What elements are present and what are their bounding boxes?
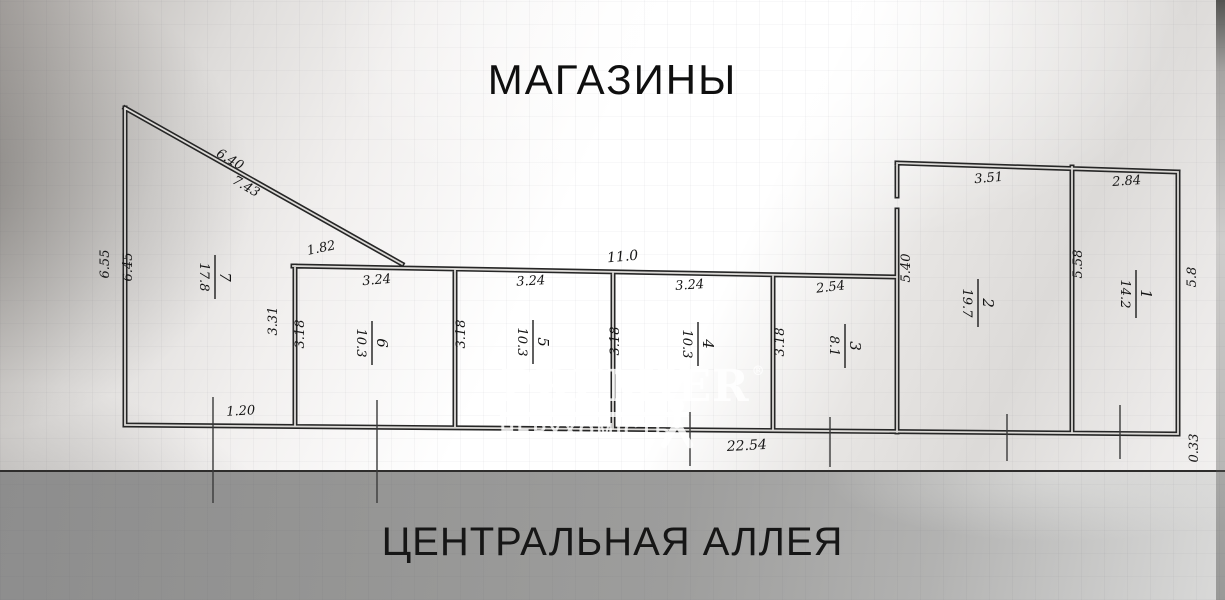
room2-number: 2	[979, 297, 997, 308]
scanned-floor-plan-photo: МАГАЗИНЫ 6.40 7.43 1.82 3.24 3.24 3.24 2…	[0, 0, 1225, 600]
room-label-3: 3 8.1	[826, 324, 864, 368]
room3-number: 3	[846, 341, 864, 351]
room-label-7: 7 17.8	[196, 255, 234, 299]
room6-area: 10.3	[353, 329, 368, 358]
dim-room1-width: 2.84	[1111, 173, 1142, 190]
street-label: ЦЕНТРАЛЬНАЯ АЛЛЕЯ	[0, 520, 1225, 565]
dim-room5-width: 3.24	[516, 273, 546, 289]
watermark-divider	[500, 412, 688, 417]
dim-room6-depth: 3.18	[293, 320, 308, 349]
dim-room6-width: 3.24	[362, 272, 392, 289]
dim-diagonal-lower: 7.43	[229, 173, 262, 200]
dim-left-inner: 6.45	[121, 253, 136, 282]
room6-number: 6	[373, 338, 391, 348]
watermark-brand: PREMIER®	[500, 350, 740, 409]
dim-room7-depth: 3.31	[266, 307, 281, 336]
watermark: PREMIER® НЕРУХОМІСТЬ	[500, 350, 740, 443]
room-label-6: 6 10.3	[353, 321, 391, 365]
room5-number: 5	[534, 337, 552, 347]
dim-room1-right: 5.8	[1185, 267, 1200, 288]
dim-room3-width: 2.54	[814, 278, 846, 297]
dim-left-outer: 6.55	[98, 250, 113, 279]
person-icon	[656, 397, 698, 449]
room1-area: 14.2	[1117, 280, 1132, 309]
room4-number: 4	[699, 338, 717, 349]
room7-number: 7	[216, 272, 234, 282]
dim-room2-width: 3.51	[974, 170, 1004, 187]
room-label-1: 1 14.2	[1117, 270, 1155, 318]
room2-area: 19.7	[959, 289, 974, 319]
room7-area: 17.8	[196, 263, 211, 292]
room-label-2: 2 19.7	[959, 279, 997, 327]
dim-room3-depth: 3.18	[773, 328, 788, 357]
dim-corridor-length: 11.0	[606, 248, 639, 267]
dim-room1-left: 5.58	[1071, 250, 1086, 279]
room3-area: 8.1	[826, 336, 841, 357]
dim-room5-depth: 3.18	[454, 320, 469, 349]
dim-wall-segment: 1.82	[306, 238, 337, 259]
dim-bottom-left: 1.20	[226, 403, 256, 419]
registered-mark: ®	[752, 364, 766, 379]
watermark-subtitle: НЕРУХОМІСТЬ	[500, 420, 740, 443]
dim-bottom-right: 0.33	[1187, 434, 1202, 463]
watermark-brand-text: PREMIER	[500, 361, 750, 412]
page-title: МАГАЗИНЫ	[0, 56, 1225, 104]
room1-number: 1	[1137, 289, 1155, 299]
dim-room4-width: 3.24	[675, 277, 705, 294]
dim-room2-left: 5.40	[899, 254, 914, 283]
